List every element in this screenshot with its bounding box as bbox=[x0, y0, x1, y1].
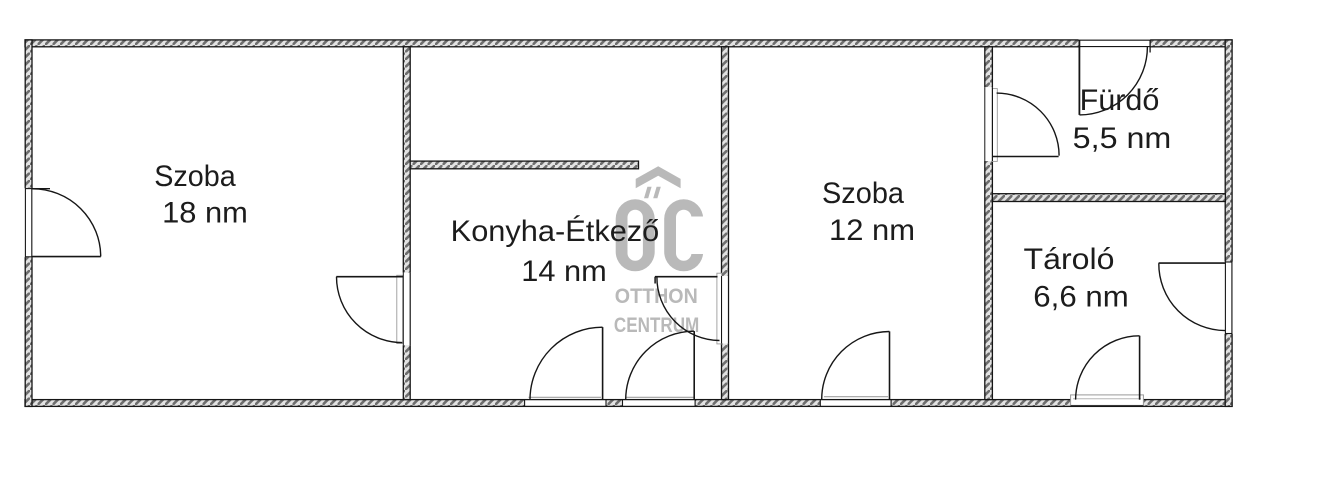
svg-text:6,6 nm: 6,6 nm bbox=[1033, 281, 1128, 314]
svg-text:Fürdő: Fürdő bbox=[1080, 84, 1160, 117]
svg-text:5,5 nm: 5,5 nm bbox=[1073, 122, 1172, 155]
svg-text:CENTRUM: CENTRUM bbox=[614, 313, 699, 337]
svg-text:Szoba: Szoba bbox=[154, 160, 236, 193]
svg-text:14 nm: 14 nm bbox=[521, 255, 607, 288]
svg-text:OTTHON: OTTHON bbox=[615, 284, 698, 308]
svg-text:18 nm: 18 nm bbox=[162, 197, 248, 230]
svg-text:12 nm: 12 nm bbox=[829, 214, 915, 247]
svg-text:Szoba: Szoba bbox=[822, 177, 904, 210]
svg-text:Tároló: Tároló bbox=[1024, 243, 1115, 276]
svg-text:Konyha-Étkező: Konyha-Étkező bbox=[451, 215, 660, 248]
